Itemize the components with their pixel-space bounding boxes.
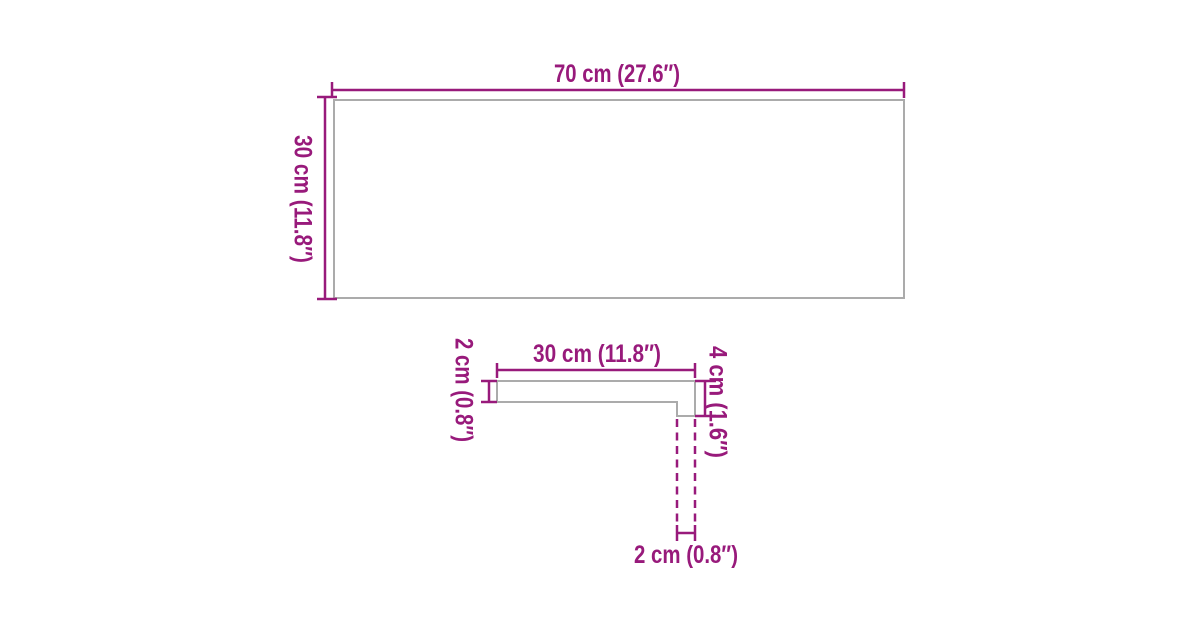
front-view-outline <box>334 100 904 298</box>
profile-edge-depth-label: 2 cm (0.8″) <box>634 541 738 569</box>
dimension-diagram: 70 cm (27.6″) 30 cm (11.8″) 30 cm (11.8″… <box>0 0 1200 630</box>
diagram-canvas: 70 cm (27.6″) 30 cm (11.8″) 30 cm (11.8″… <box>0 0 1200 630</box>
profile-width-label: 30 cm (11.8″) <box>533 340 661 368</box>
front-width-label: 70 cm (27.6″) <box>554 60 680 88</box>
profile-edge-height-label: 4 cm (1.6″) <box>703 346 731 458</box>
profile-outline <box>497 381 695 416</box>
profile-thickness-label: 2 cm (0.8″) <box>449 338 477 442</box>
front-height-label: 30 cm (11.8″) <box>288 135 316 263</box>
